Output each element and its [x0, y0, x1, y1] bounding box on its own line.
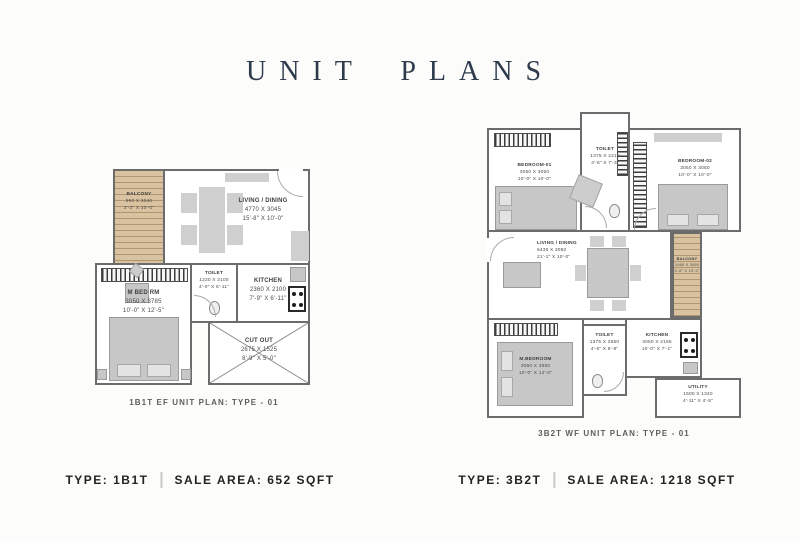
- pillow: [117, 364, 141, 377]
- sofa: [503, 262, 541, 288]
- toilet-door-arc: [194, 295, 216, 317]
- floorplan-1b1t: BALCONY 990 X 3040 3'-3" X 10'-0" LIVING…: [95, 167, 313, 393]
- room-name: BEDROOM-01: [518, 162, 552, 169]
- room-m-bedroom: M.BEDROOM 3050 X 3650 10'-0" X 12'-0": [487, 318, 584, 418]
- footer-right: TYPE: 3B2T SALE AREA: 1218 SQFT: [458, 472, 735, 488]
- room-toilet-top: TOILET 1375 X 2210 4'-6" X 7'-3": [580, 112, 630, 232]
- room-name: LIVING / DINING: [238, 197, 287, 206]
- room-name: TOILET: [205, 270, 223, 277]
- bed: [109, 317, 179, 381]
- entry-door-arc: [277, 171, 303, 197]
- room-dim-ft: 3'-6" X 10'-0": [674, 268, 699, 274]
- room-name: BALCONY: [126, 191, 151, 198]
- pillow: [501, 377, 513, 397]
- room-name: KITCHEN: [646, 332, 669, 339]
- room-dim-ft: 4'-6" X 7'-3": [591, 160, 619, 167]
- room-living-dining: LIVING / DINING 6435 X 3050 21'-1" X 10'…: [487, 230, 672, 320]
- room-kitchen: KITCHEN 3050 X 2155 10'-0" X 7'-1": [625, 318, 702, 378]
- sale-area-label-1b1t: SALE AREA: 652 SQFT: [174, 473, 334, 487]
- room-toilet: TOILET 1220 X 2100 4'-0" X 6'-11": [190, 263, 238, 323]
- nightstand: [181, 369, 191, 380]
- room-dim-ft: 4'-0" X 6'-11": [199, 284, 229, 291]
- room-bedroom-01: BEDROOM-01 3050 X 3050 10'-0" X 10'-0": [487, 128, 582, 232]
- room-name: BEDROOM-02: [678, 158, 712, 165]
- entry-door-arc: [490, 237, 514, 261]
- room-dim-mm: 1500 X 1340: [683, 391, 712, 398]
- pillow: [667, 214, 689, 226]
- room-dim-mm: 3050 X 3050: [520, 169, 549, 176]
- chair: [630, 265, 641, 281]
- room-dim-ft: 10'-0" X 7'-1": [642, 346, 672, 353]
- shelf: [654, 133, 722, 142]
- room-bedroom-02: BEDROOM-02 3050 X 3050 10'-0" X 10'-0": [628, 128, 741, 232]
- room-label-cut-out: CUT OUT 2675 X 1525 8'-9" X 5'-0": [210, 337, 308, 364]
- entry-opening: [487, 238, 490, 262]
- room-dim-ft: 4'-11" X 4'-5": [683, 398, 713, 405]
- wardrobe-hatch: [101, 268, 188, 282]
- toilet-fixture: [609, 204, 620, 218]
- chair: [590, 300, 604, 311]
- nightstand: [97, 369, 107, 380]
- room-name: M BED RM: [128, 289, 160, 298]
- room-dim-mm: 1375 X 2210: [590, 153, 619, 160]
- chair: [181, 193, 197, 213]
- room-toilet-bottom: TOILET 1375 X 2650 4'-6" X 8'-8": [582, 324, 627, 396]
- pillow: [499, 210, 512, 224]
- room-label-kitchen: KITCHEN 3050 X 2155 10'-0" X 7'-1": [629, 332, 685, 354]
- sideboard: [225, 173, 269, 182]
- bed: [495, 186, 577, 230]
- room-dim-mm: 2675 X 1525: [241, 346, 277, 355]
- chair: [575, 265, 586, 281]
- room-dim-mm: 3050 X 3050: [680, 165, 709, 172]
- footer-left: TYPE: 1B1T SALE AREA: 652 SQFT: [65, 472, 334, 488]
- caption-3b2t: 3B2T WF UNIT PLAN: TYPE - 01: [487, 429, 741, 438]
- room-name: TOILET: [596, 146, 614, 153]
- room-balcony: BALCONY 1060 X 3050 3'-6" X 10'-0": [672, 232, 702, 318]
- toilet-door-arc: [604, 372, 624, 392]
- type-label-3b2t: TYPE: 3B2T: [458, 473, 541, 487]
- room-dim-mm: 1220 X 2100: [199, 277, 228, 284]
- room-utility: UTILITY 1500 X 1340 4'-11" X 4'-5": [655, 378, 741, 418]
- cabinet: [291, 231, 309, 261]
- room-label-m-bed-rm: M BED RM 3050 X 3785 10'-0" X 12'-5": [97, 289, 190, 316]
- wardrobe-hatch: [494, 133, 551, 147]
- chair: [612, 300, 626, 311]
- room-kitchen: KITCHEN 2360 X 2100 7'-9" X 6'-11": [236, 263, 310, 323]
- toilet-fixture: [592, 374, 603, 388]
- room-dim-mm: 990 X 3040: [126, 198, 153, 205]
- caption-1b1t: 1B1T EF UNIT PLAN: TYPE - 01: [95, 398, 313, 407]
- room-dim-ft: 10'-0" X 12'-5": [123, 307, 164, 316]
- toilet-door-arc: [585, 206, 607, 228]
- room-label-bedroom-02: BEDROOM-02 3050 X 3050 10'-0" X 10'-0": [650, 158, 740, 180]
- room-name: KITCHEN: [254, 277, 282, 286]
- room-label-m-bedroom: M.BEDROOM 3050 X 3650 10'-0" X 12'-0": [489, 356, 582, 378]
- room-label-living-dining: LIVING / DINING 6435 X 3050 21'-1" X 10'…: [537, 240, 615, 262]
- room-dim-ft: 10'-0" X 12'-0": [519, 370, 552, 377]
- room-dim-mm: 3050 X 3650: [521, 363, 550, 370]
- pillow: [499, 192, 512, 206]
- chair: [181, 225, 197, 245]
- door-opening: [279, 169, 303, 172]
- room-dim-mm: 3050 X 2155: [642, 339, 671, 346]
- room-label-toilet-top: TOILET 1375 X 2210 4'-6" X 7'-3": [582, 146, 628, 168]
- divider: [160, 472, 162, 488]
- room-dim-ft: 10'-0" X 10'-0": [518, 176, 551, 183]
- kitchen-sink: [683, 362, 698, 374]
- room-name: TOILET: [595, 332, 613, 339]
- room-name: CUT OUT: [245, 337, 273, 346]
- room-dim-ft: 21'-1" X 10'-0": [537, 254, 570, 261]
- room-label-balcony: BALCONY 1060 X 3050 3'-6" X 10'-0": [674, 256, 700, 274]
- room-label-kitchen: KITCHEN 2360 X 2100 7'-9" X 6'-11": [240, 277, 296, 304]
- room-dim-mm: 6435 X 3050: [537, 247, 566, 254]
- room-label-balcony: BALCONY 990 X 3040 3'-3" X 10'-0": [115, 191, 163, 213]
- room-dim-mm: 4770 X 3045: [245, 206, 281, 215]
- room-m-bed-rm: M BED RM 3050 X 3785 10'-0" X 12'-5": [95, 263, 192, 385]
- bed: [658, 184, 728, 230]
- room-cut-out: CUT OUT 2675 X 1525 8'-9" X 5'-0": [208, 321, 310, 385]
- sale-area-label-3b2t: SALE AREA: 1218 SQFT: [567, 473, 735, 487]
- room-living-dining: LIVING / DINING 4770 X 3045 15'-8" X 10'…: [163, 169, 310, 265]
- divider: [553, 472, 555, 488]
- room-label-toilet-bottom: TOILET 1375 X 2650 4'-6" X 8'-8": [584, 332, 625, 354]
- room-dim-ft: 4'-6" X 8'-8": [591, 346, 619, 353]
- room-label-toilet: TOILET 1220 X 2100 4'-0" X 6'-11": [192, 270, 236, 292]
- pillow: [147, 364, 171, 377]
- room-dim-ft: 15'-8" X 10'-0": [243, 215, 284, 224]
- room-dim-ft: 8'-9" X 5'-0": [242, 355, 276, 364]
- room-dim-mm: 1375 X 2650: [590, 339, 619, 346]
- pillow: [697, 214, 719, 226]
- room-label-living-dining: LIVING / DINING 4770 X 3045 15'-8" X 10'…: [217, 197, 309, 224]
- unit-plans-sheet: UNIT PLANS BALCONY 990 X 3040 3'-3" X 10…: [0, 0, 800, 541]
- floorplan-3b2t: TOILET 1375 X 2210 4'-6" X 7'-3" BEDROOM…: [487, 112, 741, 420]
- page-title: UNIT PLANS: [0, 56, 800, 88]
- room-dim-mm: 2360 X 2100: [250, 286, 286, 295]
- room-label-utility: UTILITY 1500 X 1340 4'-11" X 4'-5": [657, 384, 739, 406]
- type-label-1b1t: TYPE: 1B1T: [65, 473, 148, 487]
- room-name: M.BEDROOM: [519, 356, 551, 363]
- room-dim-ft: 7'-9" X 6'-11": [250, 295, 287, 304]
- room-label-bedroom-01: BEDROOM-01 3050 X 3050 10'-0" X 10'-0": [489, 162, 580, 184]
- room-dim-ft: 3'-3" X 10'-0": [124, 205, 154, 212]
- room-name: UTILITY: [688, 384, 708, 391]
- wardrobe-hatch: [494, 323, 558, 336]
- chair: [227, 225, 243, 245]
- room-dim-ft: 10'-0" X 10'-0": [678, 172, 711, 179]
- room-dim-mm: 3050 X 3785: [125, 298, 161, 307]
- room-name: LIVING / DINING: [537, 240, 577, 247]
